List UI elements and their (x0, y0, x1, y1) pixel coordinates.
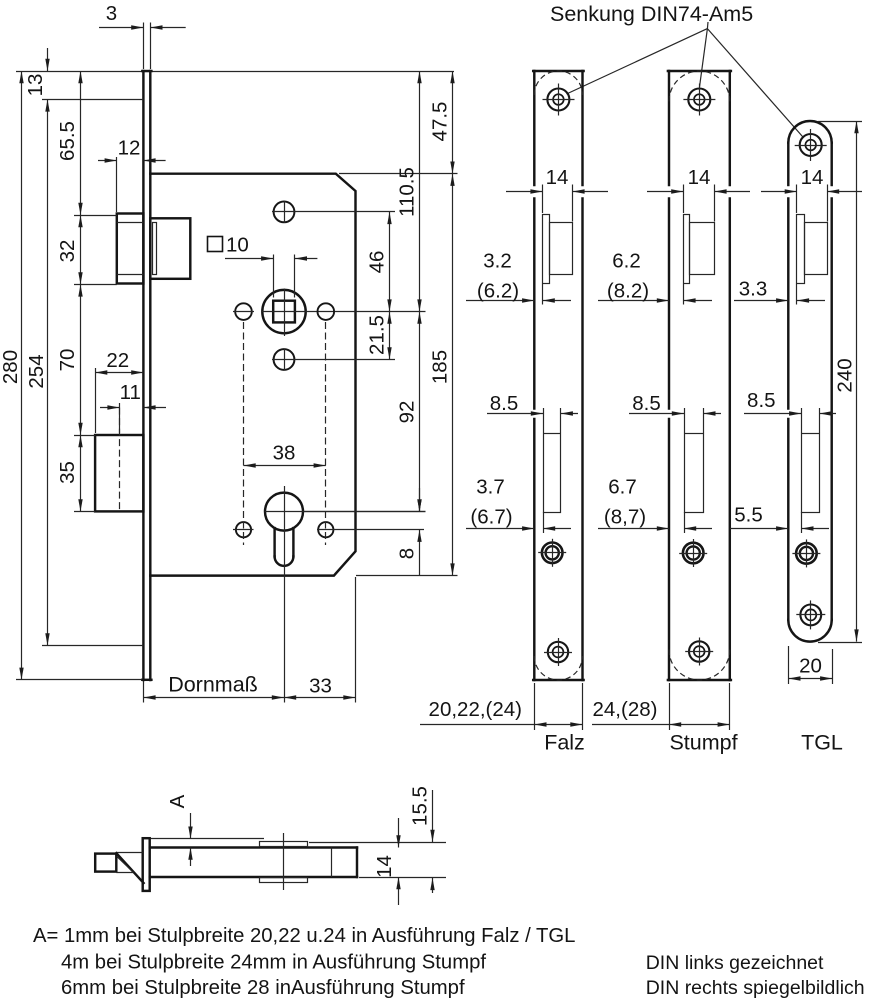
svg-text:240: 240 (833, 358, 856, 392)
svg-text:(6.7): (6.7) (470, 506, 512, 529)
svg-text:185: 185 (429, 350, 452, 384)
svg-text:14: 14 (688, 166, 711, 189)
svg-text:DIN links gezeichnet: DIN links gezeichnet (646, 952, 824, 974)
svg-text:38: 38 (273, 442, 296, 465)
svg-text:35: 35 (56, 461, 79, 484)
svg-text:65.5: 65.5 (56, 121, 79, 161)
svg-text:20,22,(24): 20,22,(24) (429, 698, 522, 721)
svg-text:6.7: 6.7 (608, 476, 637, 499)
svg-text:32: 32 (56, 240, 79, 263)
svg-text:3.7: 3.7 (476, 476, 505, 499)
svg-text:110.5: 110.5 (396, 167, 419, 217)
svg-text:92: 92 (396, 401, 419, 424)
svg-text:Senkung DIN74-Am5: Senkung DIN74-Am5 (550, 2, 753, 26)
svg-text:(6.2): (6.2) (477, 280, 519, 303)
svg-text:6mm bei Stulpbreite 28 inAusfü: 6mm bei Stulpbreite 28 inAusführung Stum… (61, 977, 465, 999)
svg-text:3.3: 3.3 (739, 278, 768, 301)
svg-text:280: 280 (0, 350, 22, 384)
svg-text:12: 12 (118, 137, 141, 160)
svg-text:5.5: 5.5 (734, 504, 763, 527)
svg-text:47.5: 47.5 (429, 102, 452, 142)
svg-text:20: 20 (799, 655, 822, 678)
svg-text:70: 70 (56, 349, 79, 372)
svg-text:24,(28): 24,(28) (593, 698, 658, 721)
svg-text:8: 8 (396, 548, 419, 559)
svg-text:3: 3 (106, 2, 117, 25)
svg-text:3.2: 3.2 (483, 250, 512, 273)
svg-text:Stumpf: Stumpf (669, 731, 737, 755)
svg-text:TGL: TGL (801, 731, 843, 755)
svg-text:14: 14 (373, 855, 396, 878)
svg-text:46: 46 (366, 251, 389, 274)
svg-text:21.5: 21.5 (366, 315, 389, 355)
svg-text:8.5: 8.5 (632, 392, 661, 415)
svg-text:14: 14 (546, 166, 569, 189)
svg-text:15.5: 15.5 (409, 786, 432, 826)
svg-text:13: 13 (24, 74, 47, 97)
svg-text:Falz: Falz (544, 731, 585, 755)
svg-text:DIN rechts spiegelbildlich: DIN rechts spiegelbildlich (646, 977, 865, 999)
svg-text:8.5: 8.5 (747, 389, 776, 412)
svg-text:8.5: 8.5 (490, 392, 519, 415)
svg-text:14: 14 (801, 166, 824, 189)
svg-text:11: 11 (120, 381, 141, 404)
svg-text:254: 254 (25, 354, 48, 388)
svg-text:(8.2): (8.2) (607, 280, 649, 303)
svg-text:Dornmaß: Dornmaß (168, 673, 258, 697)
svg-text:6.2: 6.2 (612, 250, 641, 273)
svg-text:4m bei Stulpbreite 24mm in Aus: 4m bei Stulpbreite 24mm in Ausführung St… (61, 952, 486, 974)
svg-text:33: 33 (309, 675, 332, 698)
svg-text:(8,7): (8,7) (604, 506, 646, 529)
svg-text:22: 22 (106, 349, 129, 372)
svg-text:A: A (166, 794, 189, 808)
svg-text:A= 1mm bei Stulpbreite 20,22 u: A= 1mm bei Stulpbreite 20,22 u.24 in Aus… (33, 925, 575, 947)
svg-text:10: 10 (226, 234, 249, 257)
